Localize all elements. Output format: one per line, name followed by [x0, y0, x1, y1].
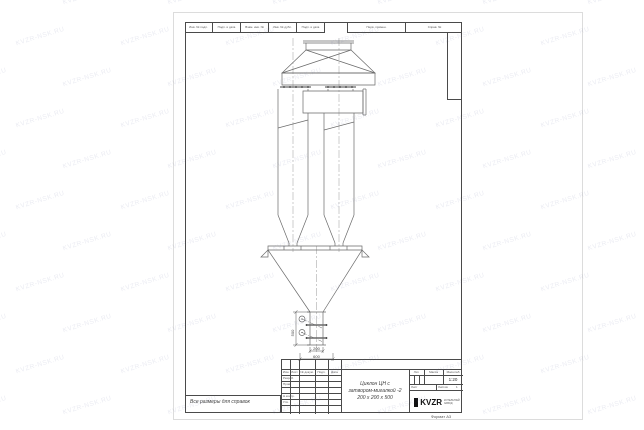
- row-utv: Утв.: [283, 400, 299, 404]
- sheets-label: Листов: [438, 385, 456, 389]
- col-izm: Изм.: [282, 370, 290, 374]
- kvzr-logo-icon: [412, 398, 418, 407]
- mounting-plate: [261, 246, 369, 257]
- col-list: Лист: [290, 370, 299, 374]
- dim-width-text: 200: [313, 346, 320, 351]
- reference-note: Все размеры для справок: [185, 395, 281, 413]
- document-title-line3: 200 х 200 х 500: [357, 395, 393, 402]
- lit-label: Лит.: [409, 370, 424, 374]
- mass-label: Масса: [424, 370, 443, 374]
- company-name: КОТЕЛЬНЫЙ ЗАВОД: [444, 399, 460, 405]
- title-block: Изм. Лист № докум. Подп. Дата Разраб. Пр…: [281, 359, 462, 413]
- row-prov: Пров.: [283, 382, 299, 386]
- dust-hopper-cone: [268, 250, 362, 312]
- row-nkontr: Н.контр.: [283, 394, 299, 398]
- document-title: Циклон ЦН с затвором-мигалкой -2 200 х 2…: [341, 369, 409, 414]
- kvzr-logo-text: KVZR: [420, 398, 442, 407]
- col-data: Дата: [328, 370, 341, 374]
- dim-height-text: 500: [290, 329, 295, 336]
- outlet-hood: [282, 50, 375, 73]
- inlet-duct: [303, 89, 366, 115]
- outlet-stub: [303, 41, 354, 50]
- scale-label: Масштаб: [443, 370, 463, 374]
- document-title-line2: затвором-мигалкой -2: [348, 388, 401, 395]
- sheets-value: 1: [456, 385, 462, 389]
- row-razrab: Разраб.: [283, 376, 299, 380]
- plenum-box: [282, 73, 375, 85]
- sheet-label: Лист: [411, 385, 431, 389]
- col-dokum: № докум.: [299, 370, 315, 374]
- document-title-line1: Циклон ЦН с: [360, 381, 390, 388]
- col-podp: Подп.: [315, 370, 328, 374]
- scale-value: 1:20: [443, 377, 463, 382]
- format-label: Формат А3: [420, 414, 462, 419]
- drawing-sheet-photo: Инв. № подл. Подп. и дата Взам. инв. № И…: [0, 0, 644, 430]
- company-cell: KVZR КОТЕЛЬНЫЙ ЗАВОД: [409, 390, 463, 414]
